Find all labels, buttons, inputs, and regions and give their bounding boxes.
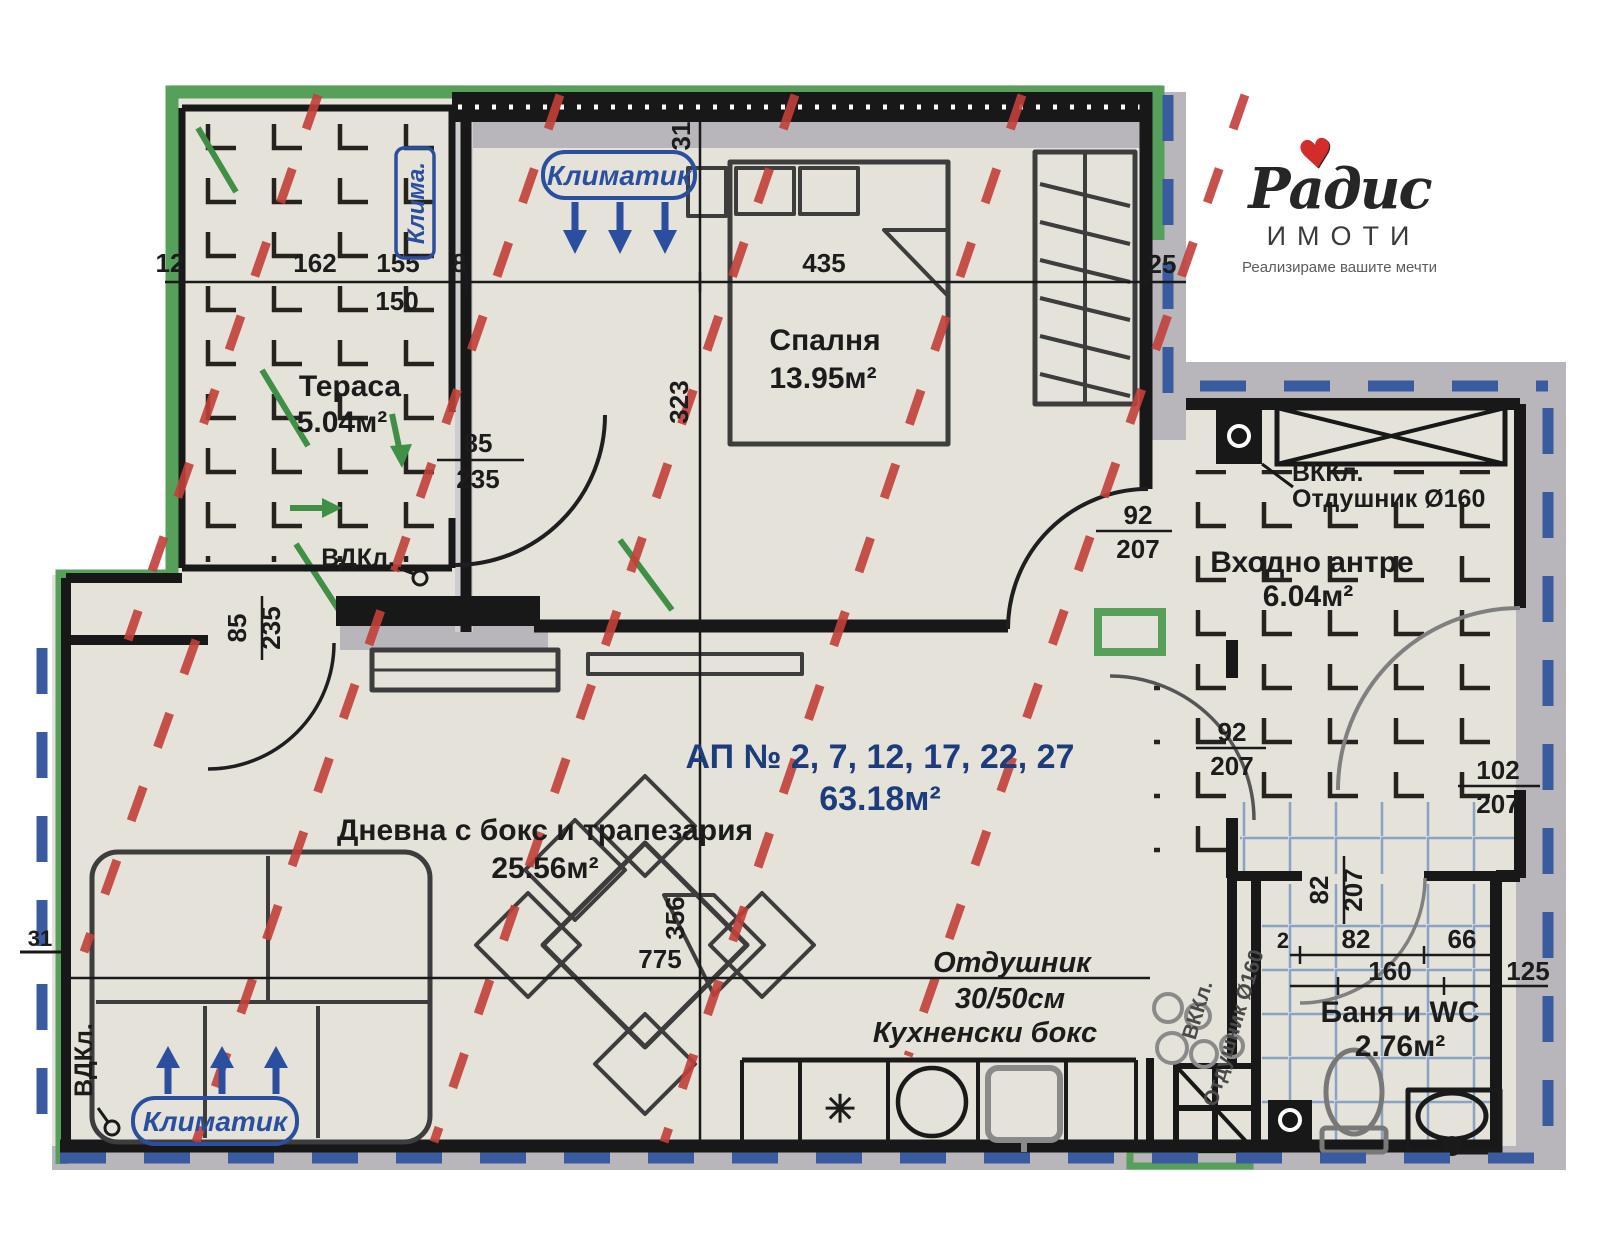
room-area-bath: 2.76м² <box>1355 1030 1446 1063</box>
vent-size-label: 30/50см <box>955 983 1065 1015</box>
agency-sub: ИМОТИ <box>1240 221 1447 252</box>
dim-162: 162 <box>293 248 336 278</box>
dim-207-v: 207 <box>1338 868 1368 911</box>
room-label-kitchen: Кухненски бокс <box>873 1017 1097 1049</box>
room-area-entry: 6.04м² <box>1263 580 1354 613</box>
agency-brand: ♥Радис <box>1232 160 1447 219</box>
agency-logo: ♥Радис ИМОТИ Реализираме вашите мечти <box>1232 160 1447 276</box>
dim-85-door: 85 <box>464 428 493 458</box>
vent160-label: Отдушник Ø160 <box>1292 485 1485 513</box>
dim-66: 66 <box>1448 924 1477 954</box>
room-area-terrace: 5.04м² <box>297 406 388 439</box>
dim-323: 323 <box>664 380 694 423</box>
dim-435: 435 <box>802 248 845 278</box>
room-label-bath: Баня и WC <box>1321 996 1480 1029</box>
vdkl-terrace-label: ВДКл. <box>321 544 395 572</box>
dim-25: 25 <box>1148 249 1177 279</box>
room-label-living: Дневна с бокс и трапезария <box>337 814 753 847</box>
dim-2: 2 <box>1277 928 1289 953</box>
vent-label: Отдушник <box>933 947 1092 979</box>
dim-235-door: 235 <box>456 464 499 494</box>
apartment-number: АП № 2, 7, 12, 17, 22, 27 <box>686 738 1075 776</box>
dim-31-left: 31 <box>28 926 52 951</box>
ac-label-bedroom: Климатик <box>547 160 693 191</box>
dim-12: 12 <box>156 248 185 278</box>
dim-207-c: 207 <box>1476 789 1519 819</box>
dim-85-left: 85 <box>222 614 252 643</box>
dim-102: 102 <box>1476 755 1519 785</box>
dim-160: 160 <box>1368 956 1411 986</box>
room-label-terrace: Тераса <box>299 370 402 403</box>
agency-tagline: Реализираме вашите мечти <box>1232 259 1447 276</box>
stove-mark: ✳ <box>824 1089 856 1131</box>
dim-775: 775 <box>638 944 681 974</box>
dim-150: 150 <box>375 286 418 316</box>
vkkl-label: ВККл. <box>1292 459 1363 487</box>
room-area-living: 25.56м² <box>491 852 598 885</box>
ac-label-terrace: Клима. <box>403 162 430 244</box>
apartment-area: 63.18м² <box>819 780 941 818</box>
ac-label-living: Климатик <box>143 1106 289 1137</box>
vdkl-living-label: ВДКл. <box>70 1023 98 1097</box>
entry-tiles-lower <box>1256 638 1514 804</box>
dim-207-b: 207 <box>1210 751 1253 781</box>
dim-356: 356 <box>660 896 690 939</box>
dim-92-a: 92 <box>1124 500 1153 530</box>
dim-207-a: 207 <box>1116 534 1159 564</box>
floorplan-page: 12 162 155 8 150 435 25 31 323 356 775 3… <box>0 0 1600 1241</box>
dim-82: 82 <box>1342 924 1371 954</box>
dim-125: 125 <box>1506 956 1549 986</box>
bath-vent-box <box>1268 1100 1312 1150</box>
room-area-bedroom: 13.95м² <box>769 362 876 395</box>
dim-92-b: 92 <box>1218 717 1247 747</box>
dim-82-v: 82 <box>1304 876 1334 905</box>
dim-31-top: 31 <box>666 122 696 151</box>
room-label-entry: Входно антре <box>1210 546 1413 579</box>
dim-8: 8 <box>452 248 466 278</box>
corridor-blue-tiles <box>1240 802 1514 874</box>
room-label-bedroom: Спалня <box>769 324 880 357</box>
dim-235-left: 235 <box>256 606 286 649</box>
heart-icon: ♥ <box>1295 132 1334 178</box>
entry-vent-box <box>1216 408 1262 464</box>
wall-chunk <box>336 596 540 626</box>
